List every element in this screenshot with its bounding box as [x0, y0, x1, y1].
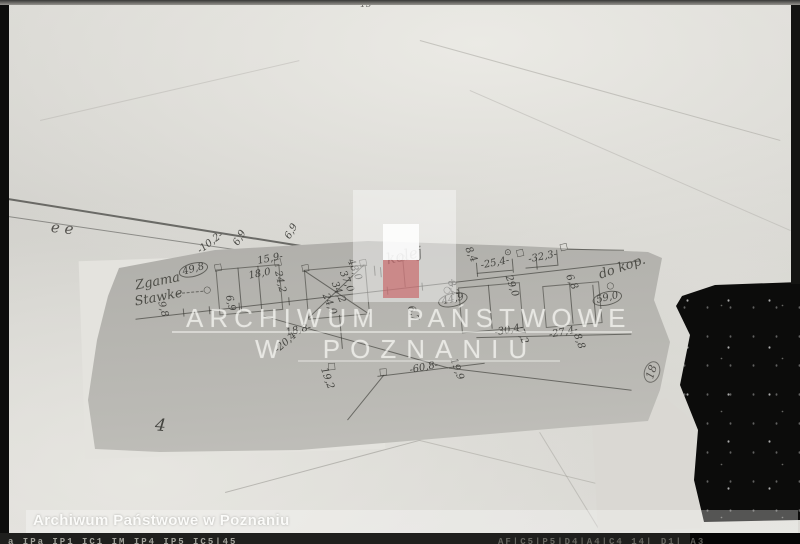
- sketch-line: [449, 368, 632, 391]
- fold-squiggle-handwriting: e e: [50, 218, 74, 238]
- sketch-symbol: □: [213, 262, 223, 273]
- film-strip-dark: [690, 533, 800, 544]
- sketch-symbol: □: [559, 242, 570, 254]
- archive-logo-red-square: [383, 260, 419, 298]
- sketch-symbol: ○: [606, 281, 615, 292]
- sketch-line: [568, 249, 624, 251]
- sketch-symbol: ○: [203, 285, 212, 296]
- sketch-tick: [512, 259, 514, 273]
- sketch-symbol: ⊙: [504, 248, 512, 259]
- archive-logo-white-square: [383, 224, 419, 260]
- watermark-underline: [298, 360, 560, 362]
- watermark-underline: [172, 331, 632, 333]
- sketch-line: [347, 375, 384, 421]
- watermark-line1: ARCHIWUM PAŃSTWOWE: [186, 303, 632, 334]
- film-edge-codes-left: a IPa IP1 IC1 IM IP4 IP5 IC5|45: [8, 537, 237, 544]
- sketch-tick: [476, 263, 478, 277]
- sketch-label: -32,3-: [527, 249, 558, 265]
- sketch-symbol: □: [300, 263, 310, 274]
- film-edge-codes-right: AF|C5|P5|D4|A4|C4 14| D1| A3: [498, 537, 705, 544]
- caption-text: Archiwum Państwowe w Poznaniu: [33, 512, 290, 529]
- film-edge-right: [791, 0, 800, 284]
- sketch-line: [526, 265, 558, 269]
- sketch-label: 8,4: [462, 245, 479, 264]
- sketch-symbol: □: [379, 367, 388, 378]
- archive-photo-scan: e e: [0, 0, 800, 544]
- sketch-symbol: □: [273, 257, 283, 268]
- sketch-label: 4: [154, 415, 167, 436]
- film-edge-top: [0, 0, 800, 5]
- sketch-symbol: □: [515, 248, 526, 260]
- sketch-label: do kop.: [597, 253, 648, 283]
- film-edge-left: [0, 0, 9, 544]
- sketch-label: 49,8: [177, 259, 210, 280]
